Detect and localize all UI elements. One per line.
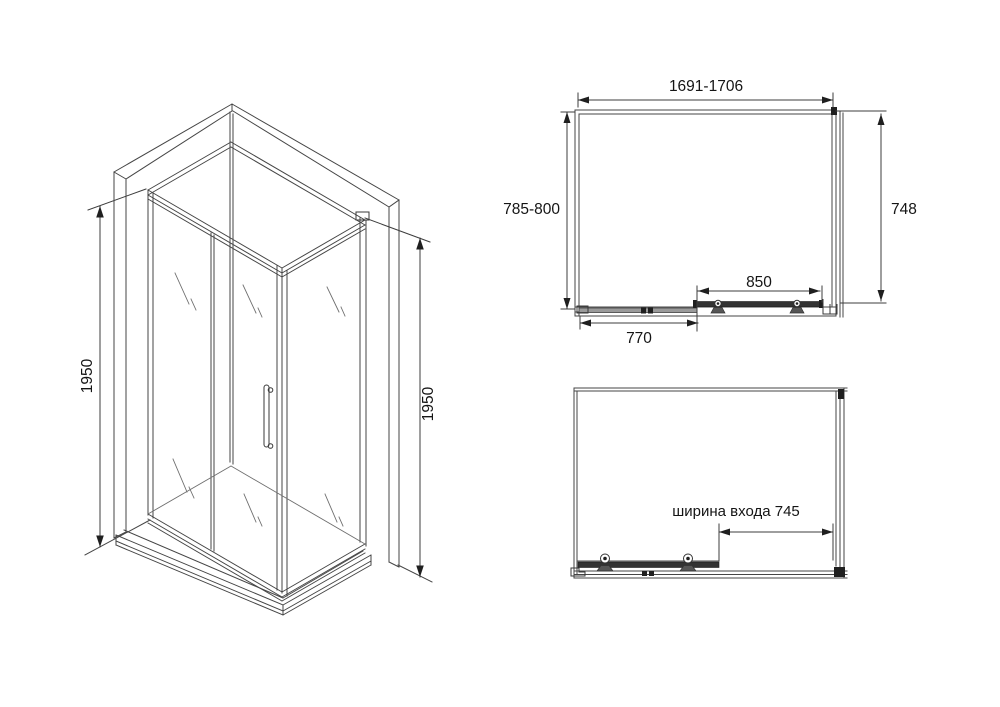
dim-label-fixed-panel-width: 770 [626,330,652,347]
rail-bracket-right [834,567,845,577]
floor-lines [85,520,432,582]
door-handle [264,385,273,448]
dim-fixed-panel-width: 770 [580,317,698,347]
iso-dim-height-right: 1950 [365,218,437,577]
dim-label-side-panel: 748 [891,201,917,218]
dim-label-height-right: 1950 [420,386,437,421]
drawing-canvas: 1950 1950 [0,0,1000,707]
dim-label-height-left: 1950 [79,358,96,393]
top-view-sliding-door [693,299,837,314]
iso-view: 1950 1950 [79,104,437,615]
dim-entrance-width: ширина входа 745 [672,503,833,561]
front-view-sliding-door [571,554,845,577]
iso-dim-height-left: 1950 [79,189,146,547]
iso-bottom-rails [148,466,365,601]
front-view: ширина входа 745 [571,388,847,578]
rail-clamp [642,571,647,576]
glass-reflection-marks [173,273,345,526]
dim-label-width-total: 1691-1706 [669,78,743,95]
dim-label-depth-total: 785-800 [503,201,560,218]
wall-bracket-top-right [838,389,844,399]
iso-walls [114,104,399,567]
technical-drawing: 1950 1950 [0,0,1000,707]
rail-clamp [649,571,654,576]
dim-width-total: 1691-1706 [578,78,833,107]
dim-label-entrance-width: ширина входа 745 [672,503,800,520]
iso-posts [148,190,369,596]
shower-tray [116,530,371,615]
front-view-frame [574,388,847,578]
dim-label-door-width: 850 [746,274,772,291]
top-view: 1691-1706 785-800 748 850 770 [503,78,917,347]
top-view-frame [575,107,843,317]
dim-side-panel: 748 [836,111,917,303]
dim-depth-total: 785-800 [503,112,575,309]
